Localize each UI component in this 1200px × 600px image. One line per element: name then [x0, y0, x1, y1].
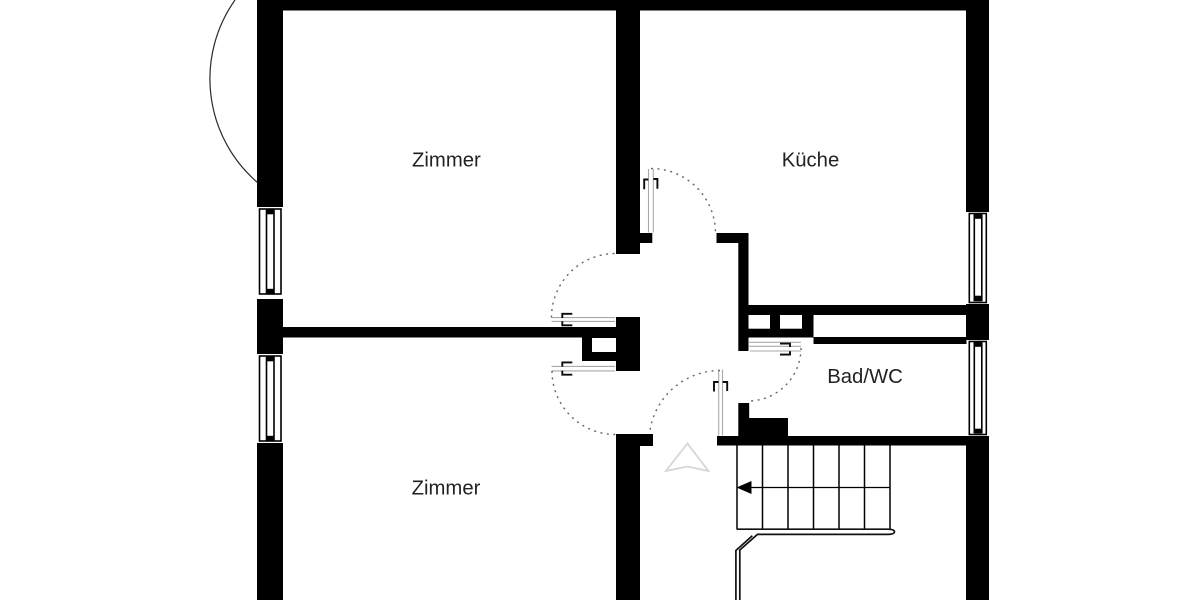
svg-text:Bad/WC: Bad/WC [827, 366, 903, 388]
svg-text:Zimmer: Zimmer [412, 150, 481, 172]
svg-text:Küche: Küche [782, 149, 840, 171]
svg-text:Zimmer: Zimmer [412, 477, 481, 499]
